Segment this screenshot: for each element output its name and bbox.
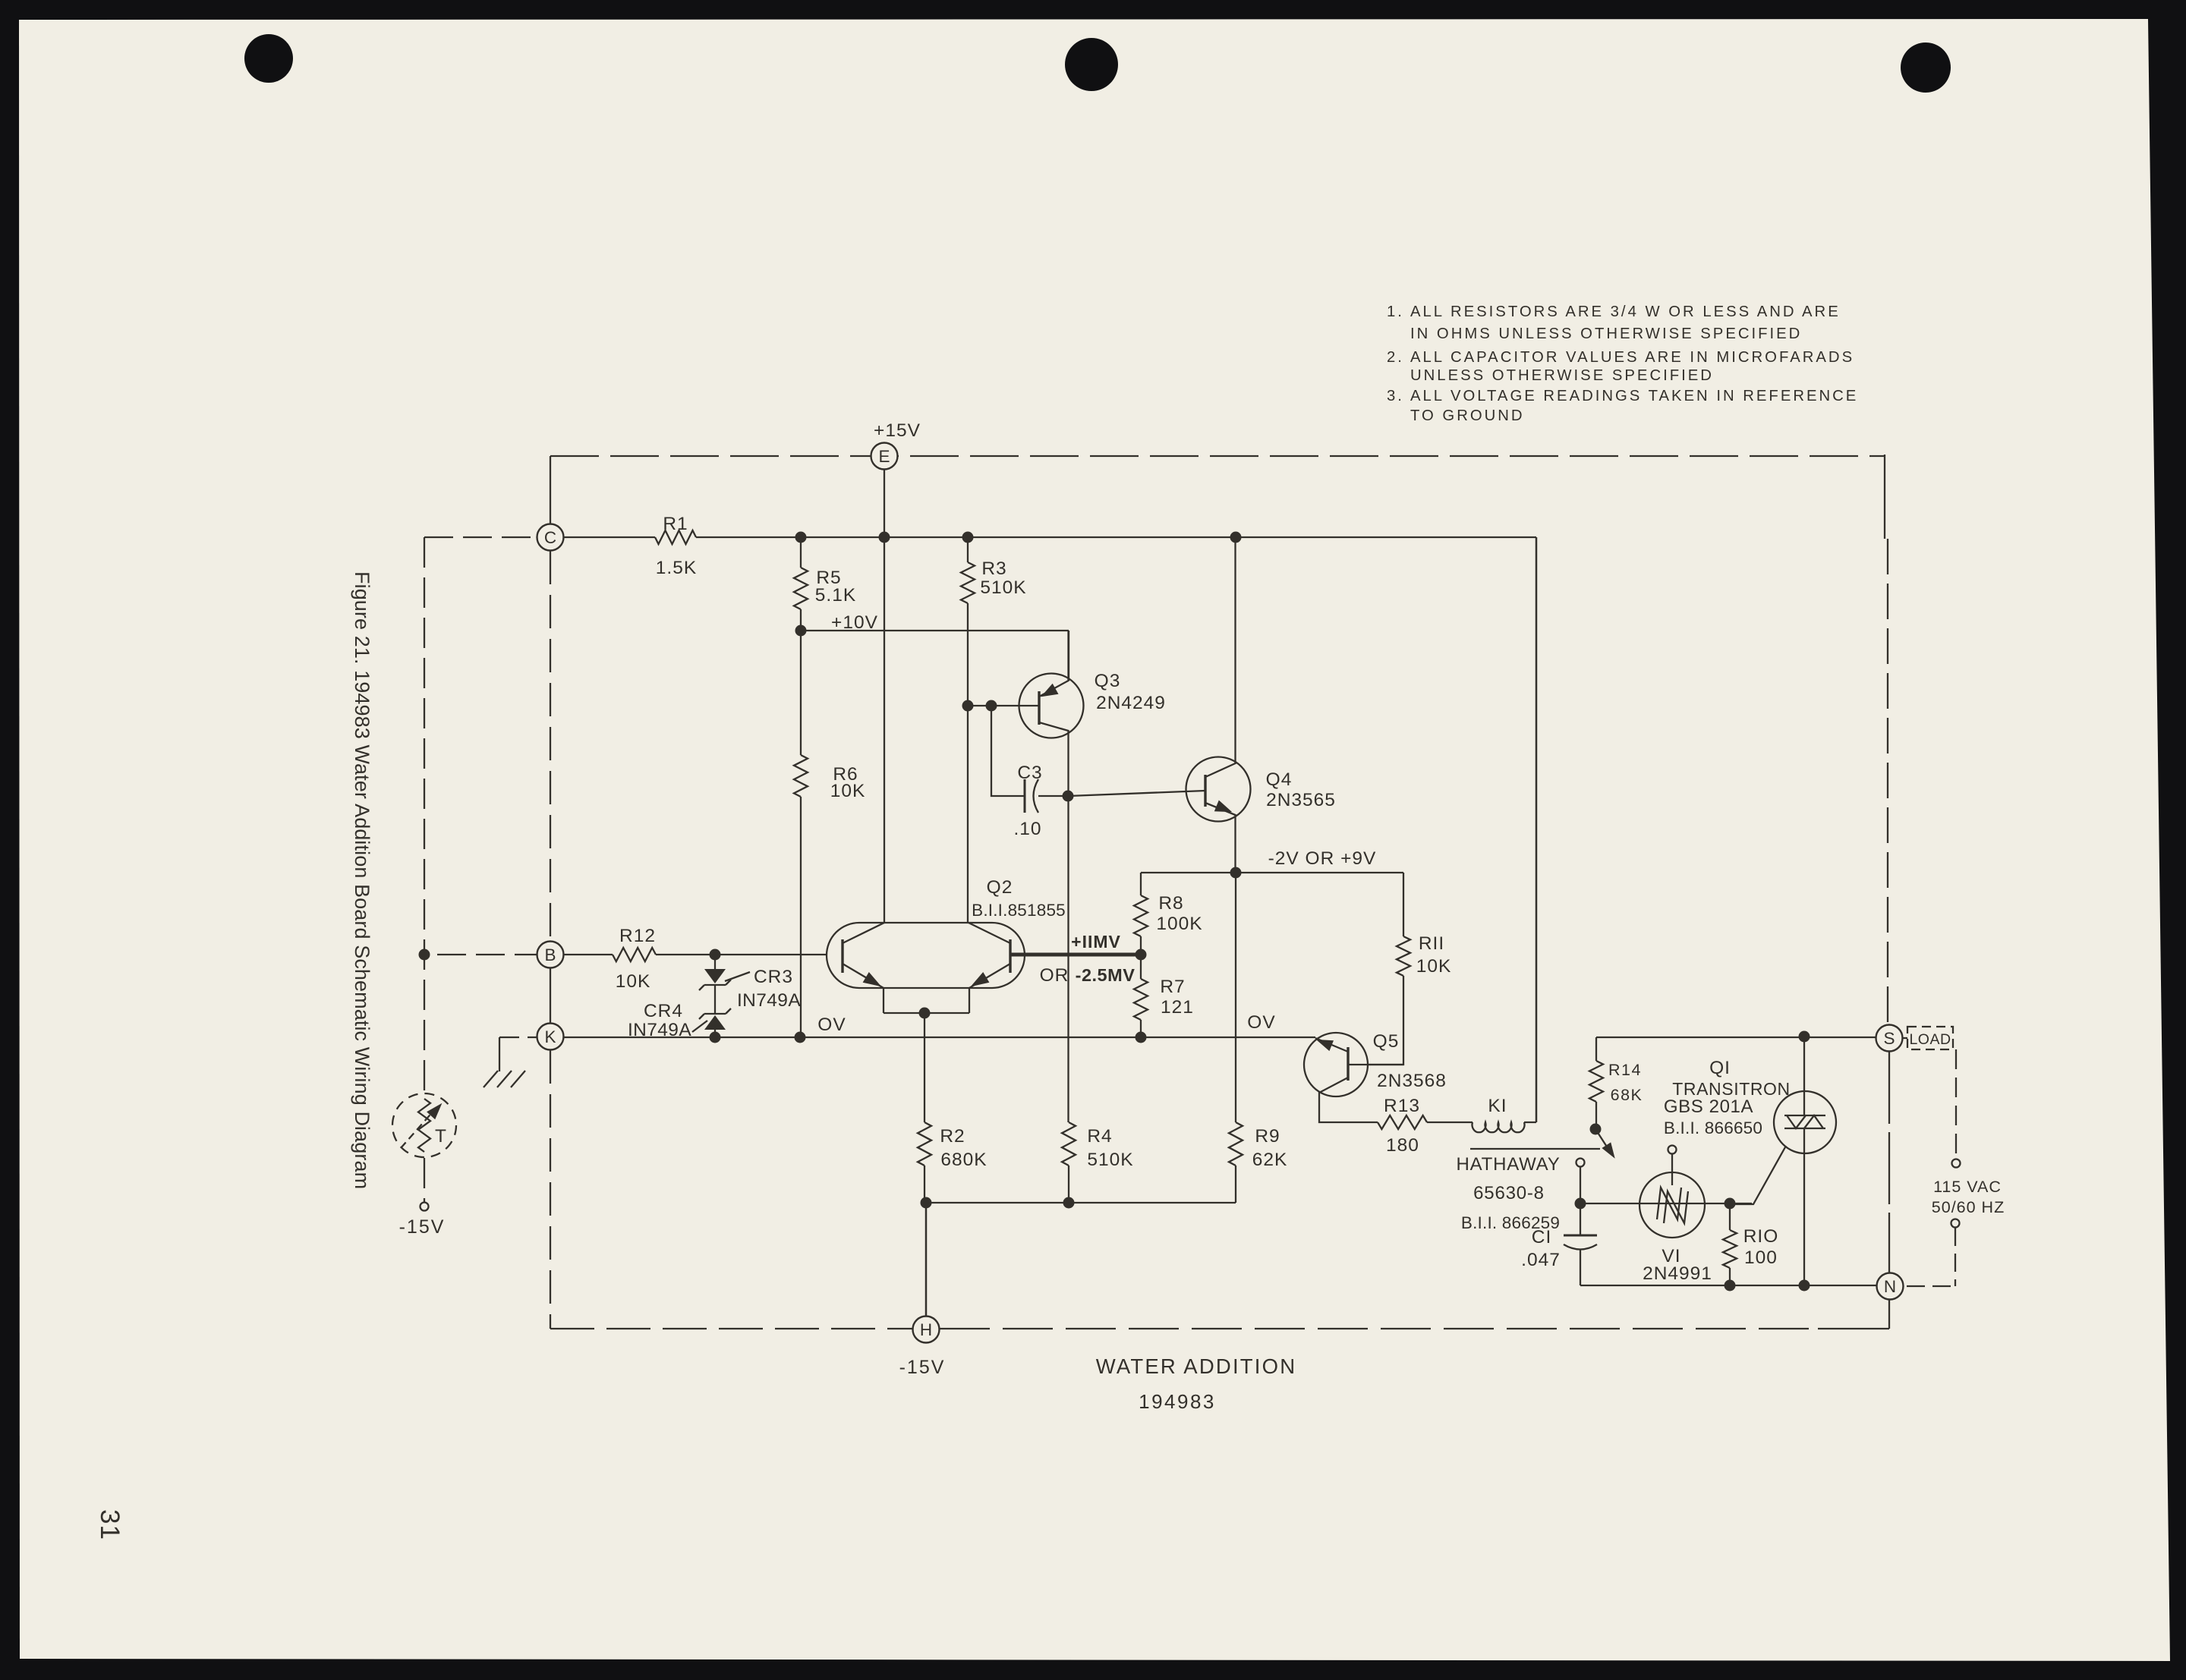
svg-text:B.I.I.851855: B.I.I.851855 [972, 901, 1066, 920]
svg-text:RIO: RIO [1743, 1226, 1779, 1247]
svg-text:1.5K: 1.5K [656, 558, 697, 578]
svg-text:115 VAC: 115 VAC [1933, 1178, 2002, 1196]
svg-text:B: B [544, 945, 556, 964]
svg-text:2N4249: 2N4249 [1096, 693, 1166, 713]
svg-text:IN OHMS UNLESS OTHERWISE SPECI: IN OHMS UNLESS OTHERWISE SPECIFIED [1410, 326, 1802, 342]
svg-text:180: 180 [1386, 1135, 1419, 1156]
svg-text:QI: QI [1709, 1058, 1731, 1078]
svg-text:-2V OR +9V: -2V OR +9V [1268, 848, 1377, 869]
svg-text:OR: OR [1040, 965, 1069, 986]
svg-text:R8: R8 [1158, 893, 1183, 914]
svg-text:Figure 21. 194983 Water Addit: Figure 21. 194983 Water Addition Board S… [351, 571, 373, 1189]
svg-text:TO GROUND: TO GROUND [1410, 407, 1525, 424]
svg-text:HATHAWAY: HATHAWAY [1456, 1154, 1560, 1175]
svg-text:R9: R9 [1255, 1126, 1280, 1147]
svg-text:-15V: -15V [399, 1216, 446, 1238]
svg-text:62K: 62K [1252, 1150, 1288, 1170]
svg-text:T: T [435, 1126, 447, 1147]
svg-text:H: H [920, 1320, 932, 1339]
svg-text:680K: 680K [940, 1150, 987, 1170]
svg-text:C3: C3 [1017, 763, 1042, 783]
svg-text:ALL RESISTORS ARE 3/4 W OR LES: ALL RESISTORS ARE 3/4 W OR LESS AND ARE [1410, 304, 1841, 320]
svg-text:R14: R14 [1608, 1061, 1642, 1079]
svg-text:R2: R2 [940, 1126, 965, 1147]
svg-text:10K: 10K [1416, 956, 1452, 977]
svg-text:31: 31 [95, 1509, 124, 1540]
svg-text:IN749A: IN749A [737, 990, 801, 1011]
svg-text:100: 100 [1744, 1247, 1778, 1268]
svg-text:1.: 1. [1387, 304, 1404, 320]
svg-text:Q4: Q4 [1266, 769, 1293, 790]
svg-text:+10V: +10V [831, 612, 878, 633]
svg-text:50/60 HZ: 50/60 HZ [1932, 1198, 2005, 1216]
svg-text:R7: R7 [1160, 977, 1185, 997]
svg-text:2N3565: 2N3565 [1266, 790, 1336, 810]
svg-text:B.I.I. 866650: B.I.I. 866650 [1664, 1118, 1762, 1137]
svg-text:WATER ADDITION: WATER ADDITION [1096, 1354, 1297, 1378]
svg-text:GBS 201A: GBS 201A [1664, 1096, 1753, 1117]
svg-text:.10: .10 [1013, 819, 1041, 839]
svg-text:+15V: +15V [874, 420, 921, 441]
svg-text:+IIMV: +IIMV [1071, 932, 1121, 952]
svg-text:S: S [1883, 1029, 1895, 1048]
svg-text:ALL CAPACITOR VALUES ARE IN MI: ALL CAPACITOR VALUES ARE IN MICROFARADS [1410, 349, 1854, 366]
svg-text:Q3: Q3 [1095, 671, 1121, 691]
svg-text:R3: R3 [981, 558, 1006, 579]
svg-text:194983: 194983 [1139, 1390, 1216, 1413]
svg-text:-2.5MV: -2.5MV [1076, 965, 1136, 985]
svg-text:UNLESS OTHERWISE SPECIFIED: UNLESS OTHERWISE SPECIFIED [1410, 367, 1714, 384]
svg-text:IN749A: IN749A [628, 1020, 691, 1040]
svg-text:OV: OV [817, 1015, 846, 1035]
svg-text:LOAD: LOAD [1909, 1031, 1951, 1048]
svg-text:R12: R12 [619, 926, 656, 946]
svg-text:68K: 68K [1611, 1086, 1643, 1104]
svg-text:10K: 10K [616, 971, 651, 992]
svg-text:-15V: -15V [899, 1357, 946, 1378]
svg-text:CR3: CR3 [754, 967, 793, 987]
svg-text:CI: CI [1532, 1227, 1552, 1247]
svg-text:3.: 3. [1387, 388, 1404, 404]
svg-text:R1: R1 [663, 514, 688, 534]
svg-text:R13: R13 [1384, 1096, 1420, 1116]
svg-text:R4: R4 [1087, 1126, 1112, 1147]
svg-text:RII: RII [1419, 933, 1444, 954]
svg-text:2N4991: 2N4991 [1643, 1263, 1712, 1284]
svg-text:510K: 510K [980, 577, 1026, 598]
svg-text:KI: KI [1488, 1096, 1507, 1116]
svg-text:CR4: CR4 [644, 1001, 683, 1021]
svg-text:E: E [878, 447, 890, 466]
svg-text:.047: .047 [1521, 1250, 1561, 1270]
svg-text:K: K [544, 1027, 556, 1046]
svg-text:5.1K: 5.1K [815, 585, 856, 606]
svg-text:C: C [544, 528, 556, 547]
svg-text:2.: 2. [1387, 349, 1404, 366]
svg-text:10K: 10K [830, 781, 866, 801]
svg-text:65630-8: 65630-8 [1473, 1183, 1545, 1203]
svg-text:OV: OV [1247, 1012, 1275, 1033]
svg-text:Q5: Q5 [1373, 1031, 1400, 1052]
svg-text:N: N [1884, 1277, 1896, 1296]
svg-text:Q2: Q2 [987, 877, 1013, 898]
svg-text:121: 121 [1161, 997, 1194, 1018]
svg-text:100K: 100K [1156, 914, 1202, 934]
svg-text:2N3568: 2N3568 [1377, 1071, 1447, 1091]
svg-text:ALL VOLTAGE READINGS TAKEN IN: ALL VOLTAGE READINGS TAKEN IN REFERENCE [1410, 388, 1858, 404]
svg-text:510K: 510K [1087, 1150, 1133, 1170]
